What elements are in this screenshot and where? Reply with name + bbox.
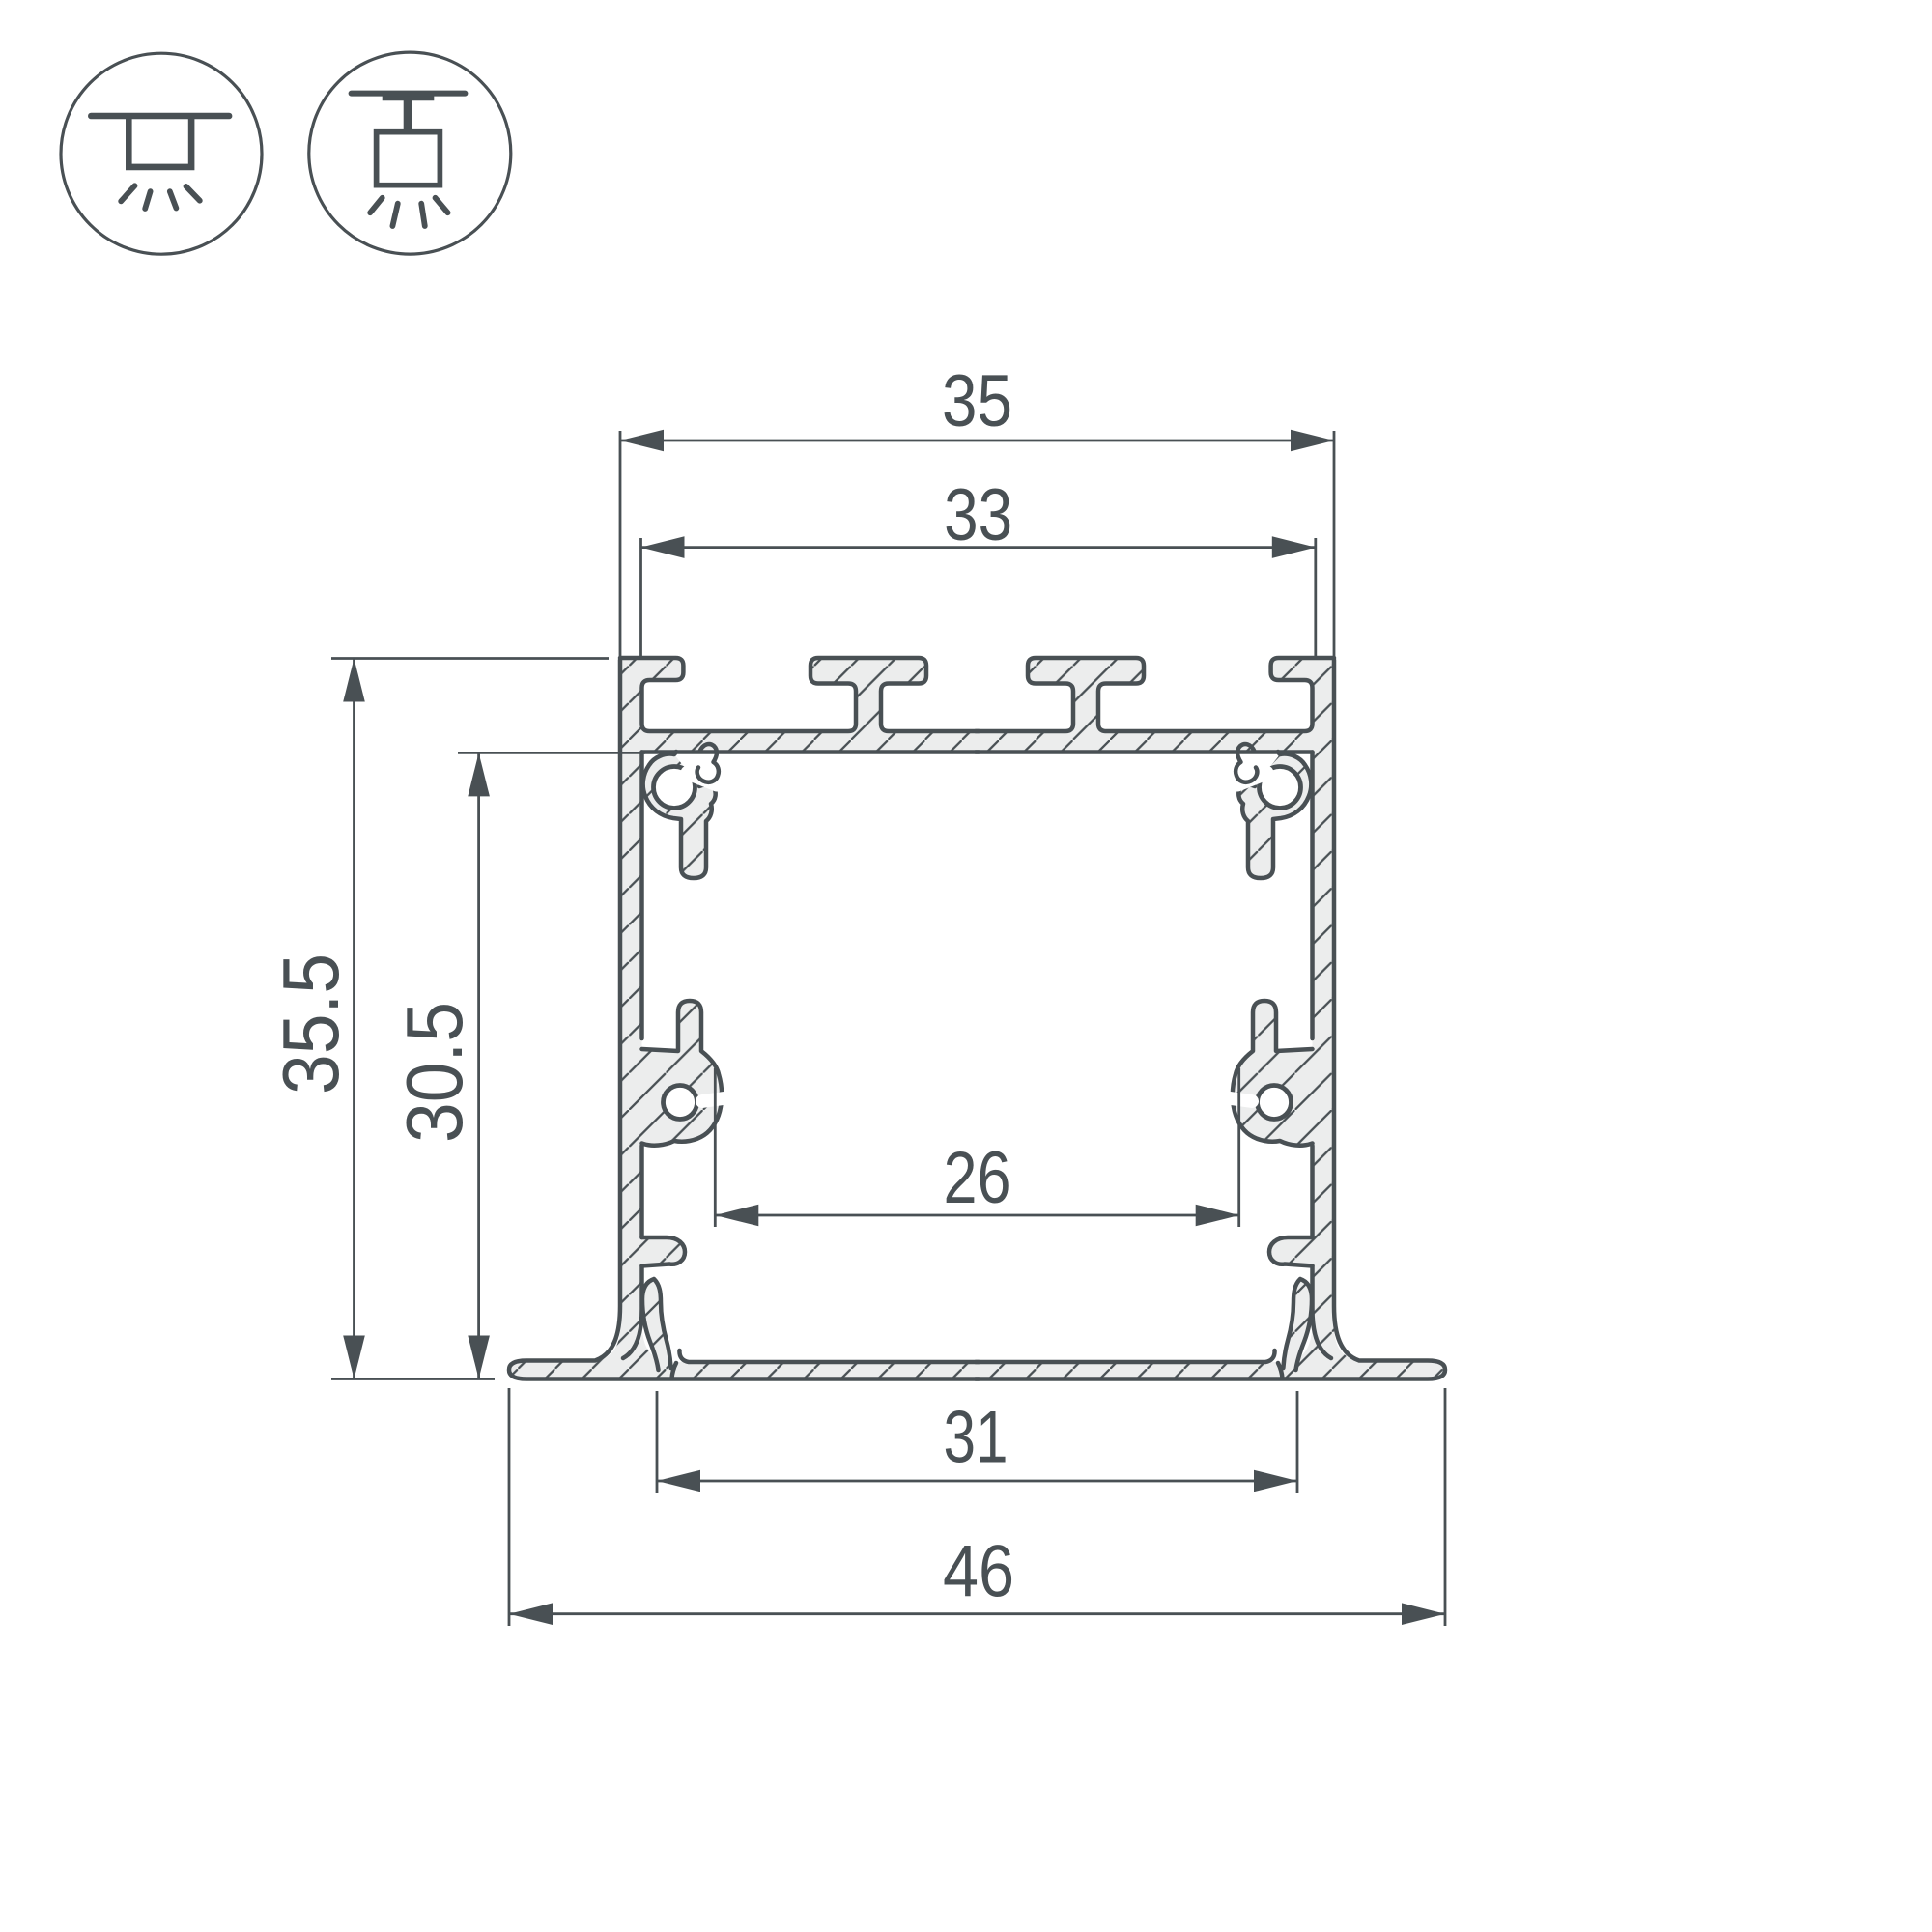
svg-text:35.5: 35.5: [266, 953, 355, 1094]
svg-text:31: 31: [944, 1397, 1009, 1479]
svg-text:26: 26: [944, 1137, 1011, 1219]
svg-text:35: 35: [942, 360, 1012, 442]
svg-text:30.5: 30.5: [389, 1002, 479, 1143]
svg-text:46: 46: [943, 1531, 1014, 1613]
svg-text:33: 33: [944, 474, 1012, 556]
